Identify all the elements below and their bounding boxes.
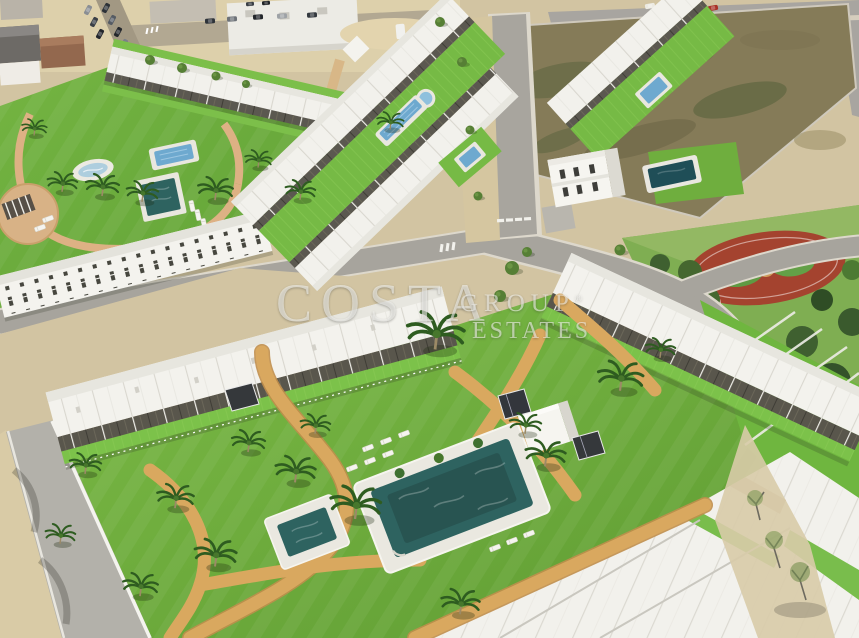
scene-svg xyxy=(0,0,859,638)
large-white-building xyxy=(227,0,360,55)
aerial-render: COSTA GROUP® ESTATES xyxy=(0,0,859,638)
playground-circle xyxy=(0,184,58,244)
